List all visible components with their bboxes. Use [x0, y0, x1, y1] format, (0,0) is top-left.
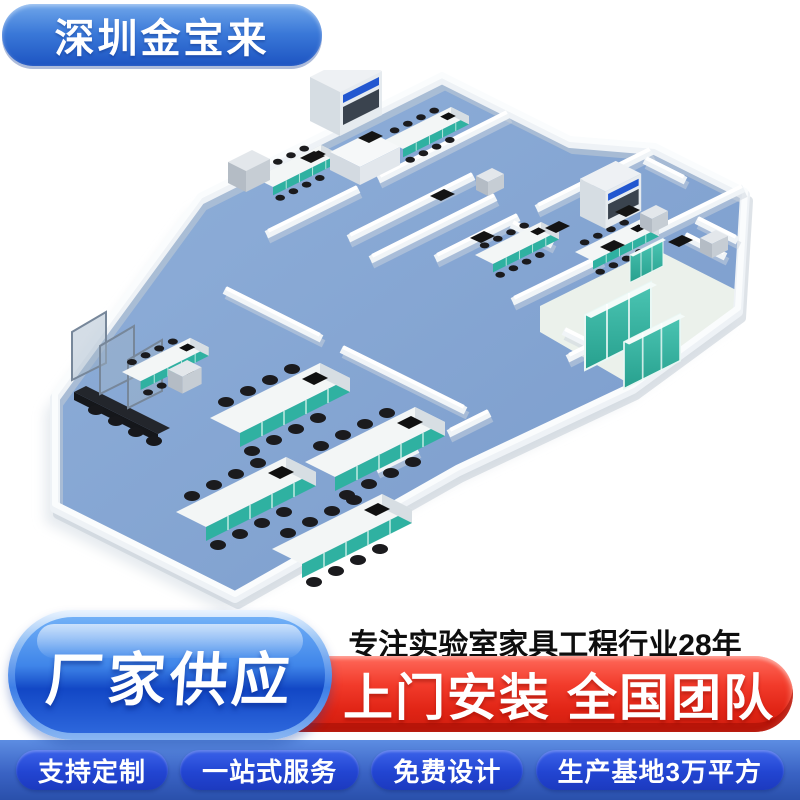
- lab-floorplan-render: [0, 70, 800, 618]
- feature-pill-free-design: 免费设计: [371, 750, 523, 790]
- brand-banner: 深圳金宝来: [2, 4, 322, 66]
- product-poster: 深圳金宝来 专注实验室家具工程行业28年 上门安装 全国团队 厂家供应 支持定制…: [0, 0, 800, 800]
- feature-pill-label: 免费设计: [393, 752, 501, 789]
- supply-badge-inner: 厂家供应: [15, 617, 325, 733]
- service-banner-text: 上门安装 全国团队: [343, 658, 775, 730]
- brand-banner-label: 深圳金宝来: [55, 6, 270, 64]
- feature-pill-production-base: 生产基地3万平方: [536, 750, 784, 790]
- supply-badge: 厂家供应: [8, 610, 332, 740]
- supply-badge-label: 厂家供应: [43, 633, 297, 717]
- feature-pill-label: 一站式服务: [202, 752, 337, 789]
- feature-pill-customization: 支持定制: [16, 750, 168, 790]
- feature-pill-one-stop-service: 一站式服务: [180, 750, 359, 790]
- feature-pill-label: 支持定制: [38, 752, 146, 789]
- feature-pill-label: 生产基地3万平方: [558, 752, 762, 789]
- feature-strip: 支持定制 一站式服务 免费设计 生产基地3万平方: [0, 740, 800, 800]
